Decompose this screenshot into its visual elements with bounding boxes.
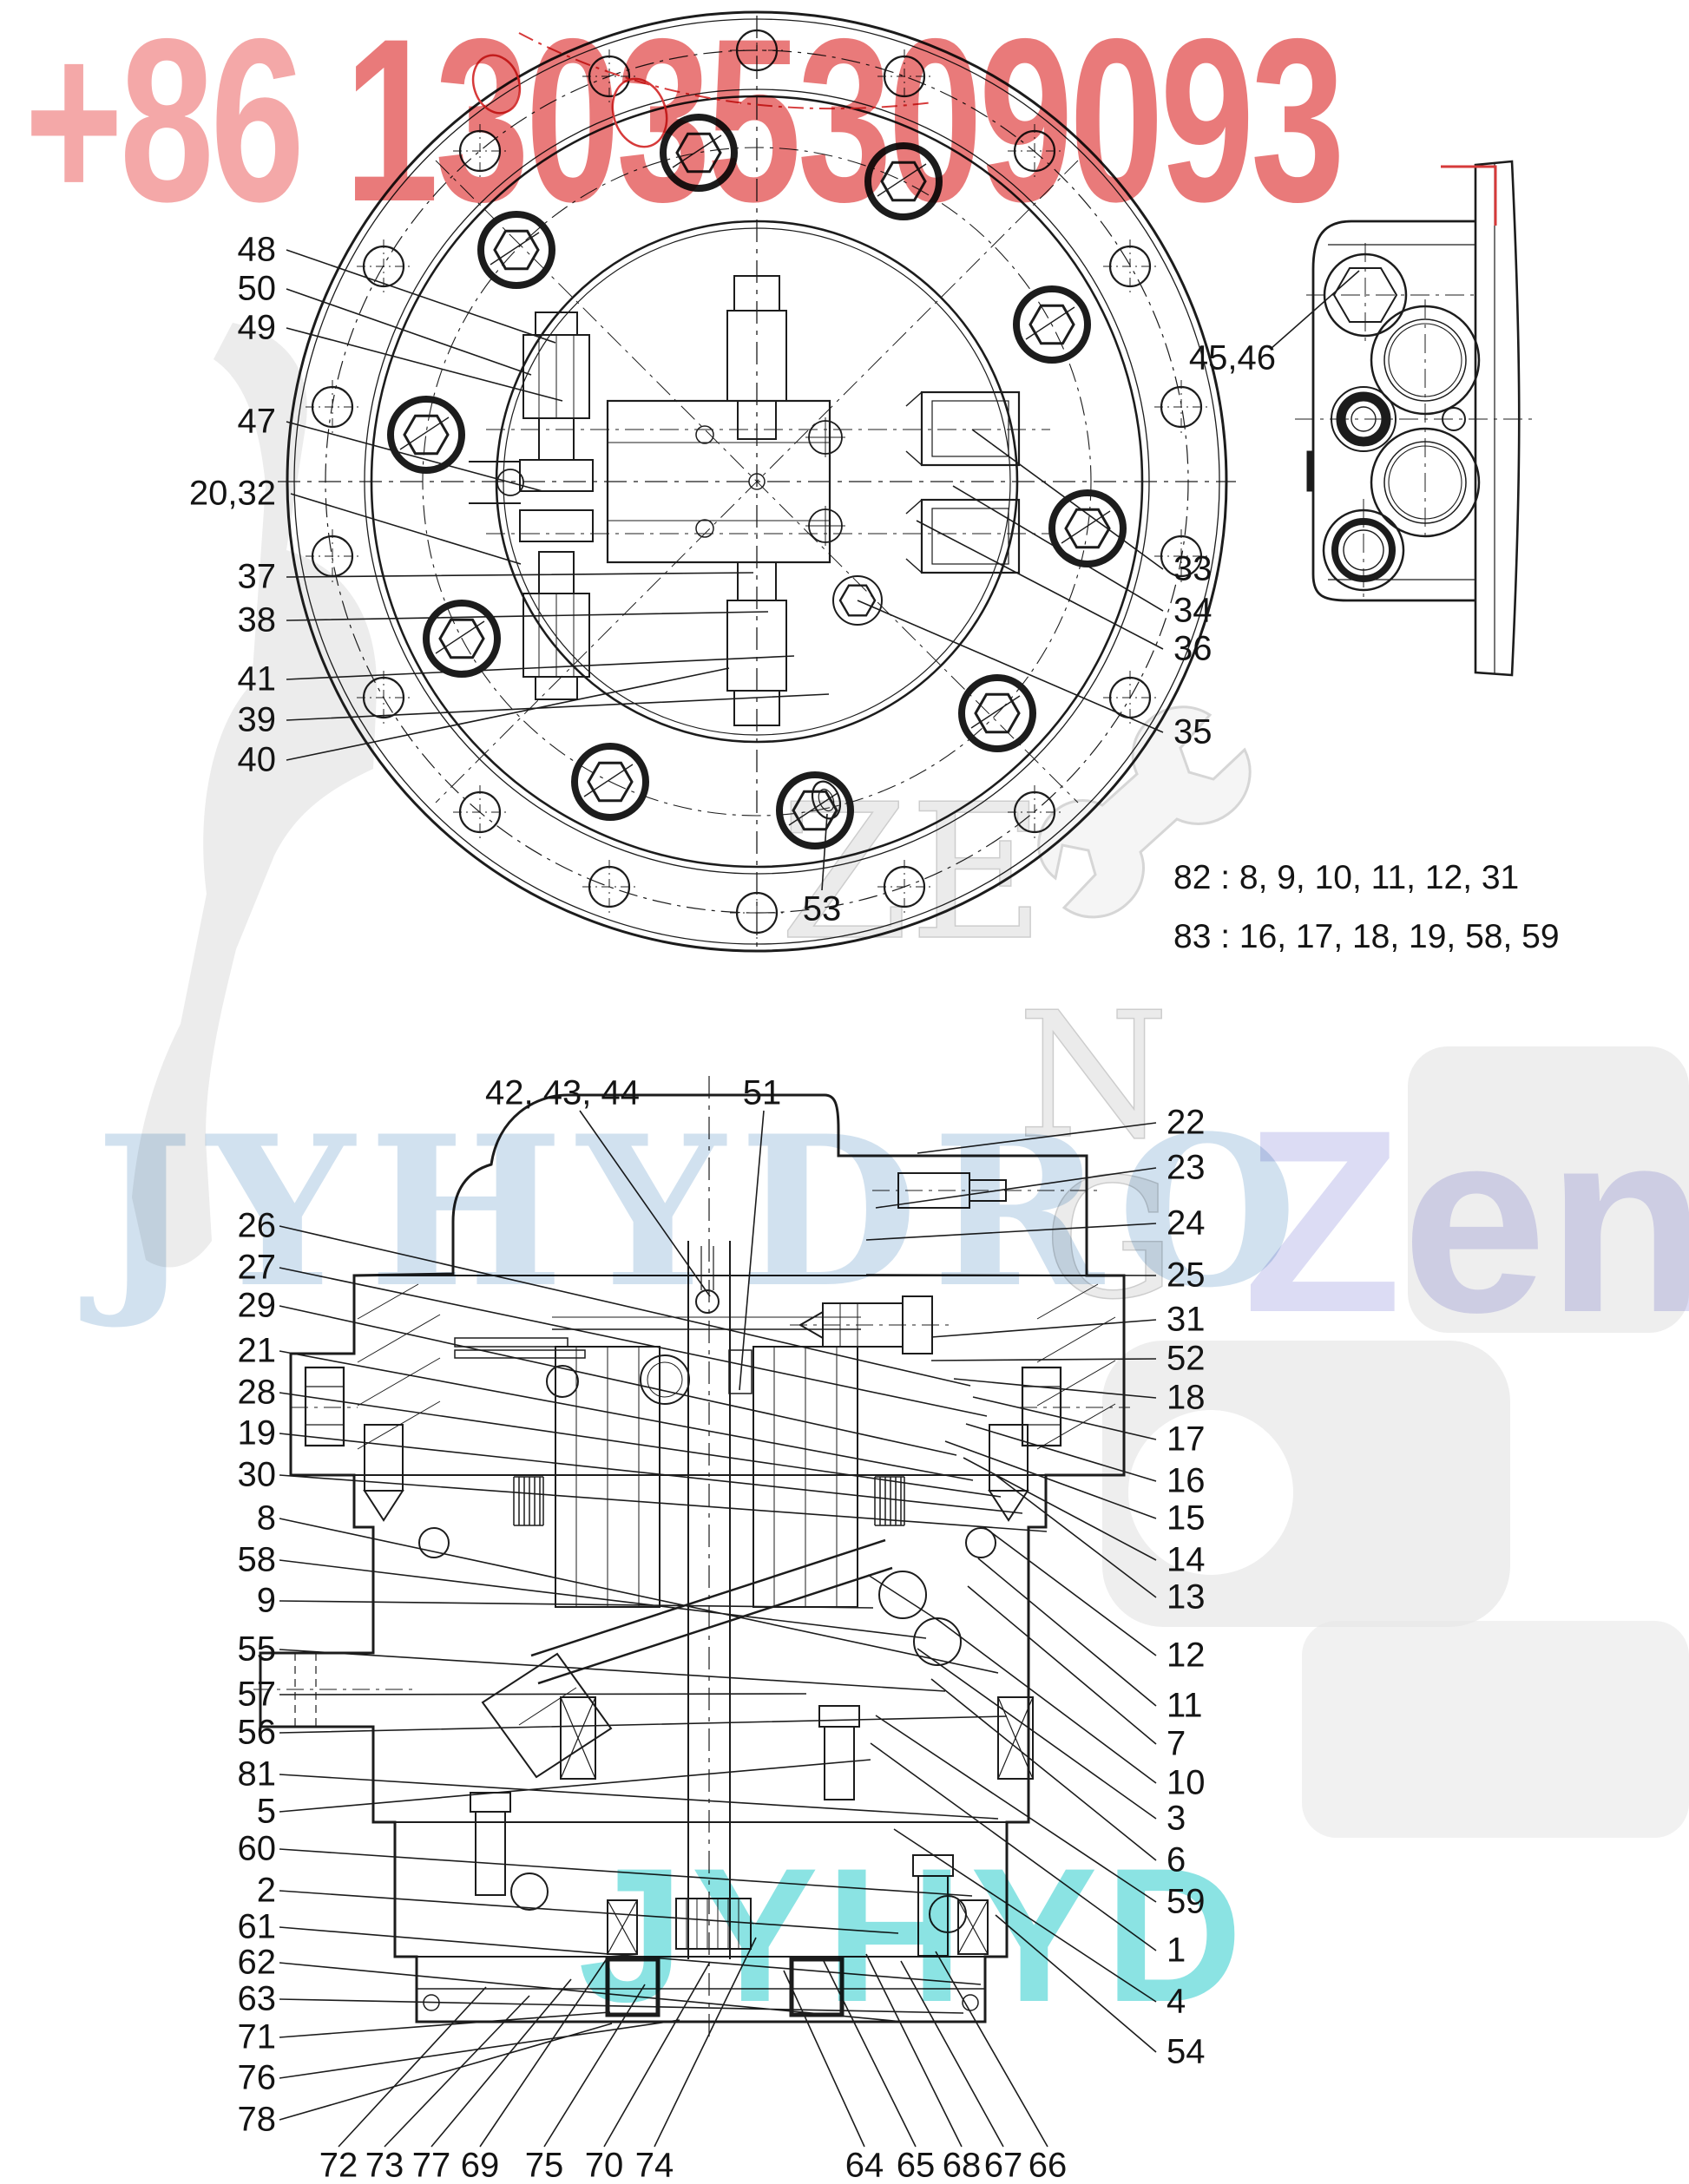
part-label: 77: [412, 2147, 451, 2184]
part-label: 41: [238, 660, 277, 699]
part-label: 24: [1167, 1204, 1206, 1243]
part-label: 53: [803, 890, 842, 929]
part-label: 19: [238, 1414, 277, 1453]
part-label: 22: [1167, 1104, 1206, 1143]
part-label: 30: [238, 1456, 277, 1495]
part-label: 15: [1167, 1499, 1206, 1538]
part-label: 76: [238, 2059, 277, 2098]
part-label: 58: [238, 1541, 277, 1580]
part-label: 11: [1167, 1687, 1203, 1726]
part-label: 13: [1167, 1578, 1206, 1617]
part-label: 62: [238, 1944, 277, 1983]
part-label: 49: [238, 309, 277, 348]
part-label: 10: [1167, 1764, 1206, 1803]
parts-diagram-page: ZE N G: [0, 0, 1689, 2184]
part-label: 21: [238, 1332, 277, 1371]
assembly-note: 83 : 16, 17, 18, 19, 58, 59: [1173, 918, 1560, 956]
part-label: 33: [1173, 550, 1213, 589]
part-label: 36: [1173, 630, 1213, 669]
part-label: 7: [1167, 1725, 1186, 1764]
part-label: 16: [1167, 1462, 1206, 1501]
part-label: 5: [257, 1793, 276, 1832]
part-label: 48: [238, 231, 277, 270]
part-label: 57: [238, 1676, 277, 1715]
phone-digits: 13035309093: [345, 0, 1342, 250]
part-label: 38: [238, 601, 277, 640]
part-label: 72: [319, 2147, 358, 2184]
part-label: 12: [1167, 1636, 1206, 1676]
part-label: 65: [897, 2147, 936, 2184]
part-label: 31: [1167, 1301, 1206, 1340]
part-label: 55: [238, 1630, 277, 1669]
part-label: 71: [238, 2018, 277, 2057]
phone-number-watermark: +86 13035309093: [24, 3, 1341, 236]
part-label: 35: [1173, 713, 1213, 752]
part-label: 51: [743, 1074, 782, 1113]
part-label: 28: [238, 1374, 277, 1413]
part-label: 61: [238, 1908, 277, 1947]
part-label: 81: [238, 1755, 277, 1794]
part-label: 70: [585, 2147, 624, 2184]
part-label: 42, 43, 44: [485, 1074, 640, 1113]
jyhyd-watermark: JYHYD: [578, 1826, 1250, 2045]
part-label: 29: [238, 1287, 277, 1326]
part-label: 1: [1167, 1931, 1186, 1971]
zeng-watermark: Zeng: [1243, 1071, 1689, 1371]
jyhydro-watermark: JYHYDRO: [95, 1092, 1311, 1334]
part-label: 67: [984, 2147, 1023, 2184]
part-label: 63: [238, 1980, 277, 2019]
part-label: 25: [1167, 1256, 1206, 1295]
part-label: 47: [238, 403, 277, 442]
part-label: 39: [238, 701, 277, 740]
part-label: 37: [238, 558, 277, 597]
part-label: 64: [845, 2147, 884, 2184]
part-label: 4: [1167, 1983, 1186, 2022]
part-label: 14: [1167, 1541, 1206, 1580]
part-label: 6: [1167, 1841, 1186, 1880]
part-label: 2: [257, 1872, 276, 1911]
part-label: 60: [238, 1830, 277, 1869]
part-label: 18: [1167, 1379, 1206, 1418]
part-label: 75: [525, 2147, 564, 2184]
part-label: 54: [1167, 2033, 1206, 2072]
part-label: 73: [365, 2147, 404, 2184]
assembly-note: 82 : 8, 9, 10, 11, 12, 31: [1173, 859, 1519, 897]
part-label: 23: [1167, 1149, 1206, 1188]
part-label: 66: [1029, 2147, 1068, 2184]
part-label: 40: [238, 741, 277, 780]
part-label: 9: [257, 1582, 276, 1621]
part-label: 74: [635, 2147, 674, 2184]
part-label: 68: [943, 2147, 982, 2184]
part-label: 26: [238, 1207, 277, 1246]
part-label: 20,32: [189, 475, 276, 514]
part-label: 56: [238, 1714, 277, 1753]
part-label: 8: [257, 1499, 276, 1538]
part-label: 3: [1167, 1800, 1186, 1839]
part-label: 50: [238, 270, 277, 309]
part-label: 27: [238, 1249, 277, 1288]
phone-prefix: +86: [24, 0, 345, 250]
part-label: 17: [1167, 1420, 1206, 1459]
part-label: 69: [461, 2147, 500, 2184]
part-label: 52: [1167, 1340, 1206, 1379]
part-label: 78: [238, 2101, 277, 2140]
part-label: 59: [1167, 1883, 1206, 1922]
part-label: 34: [1173, 592, 1213, 631]
part-label: 45,46: [1189, 339, 1276, 378]
